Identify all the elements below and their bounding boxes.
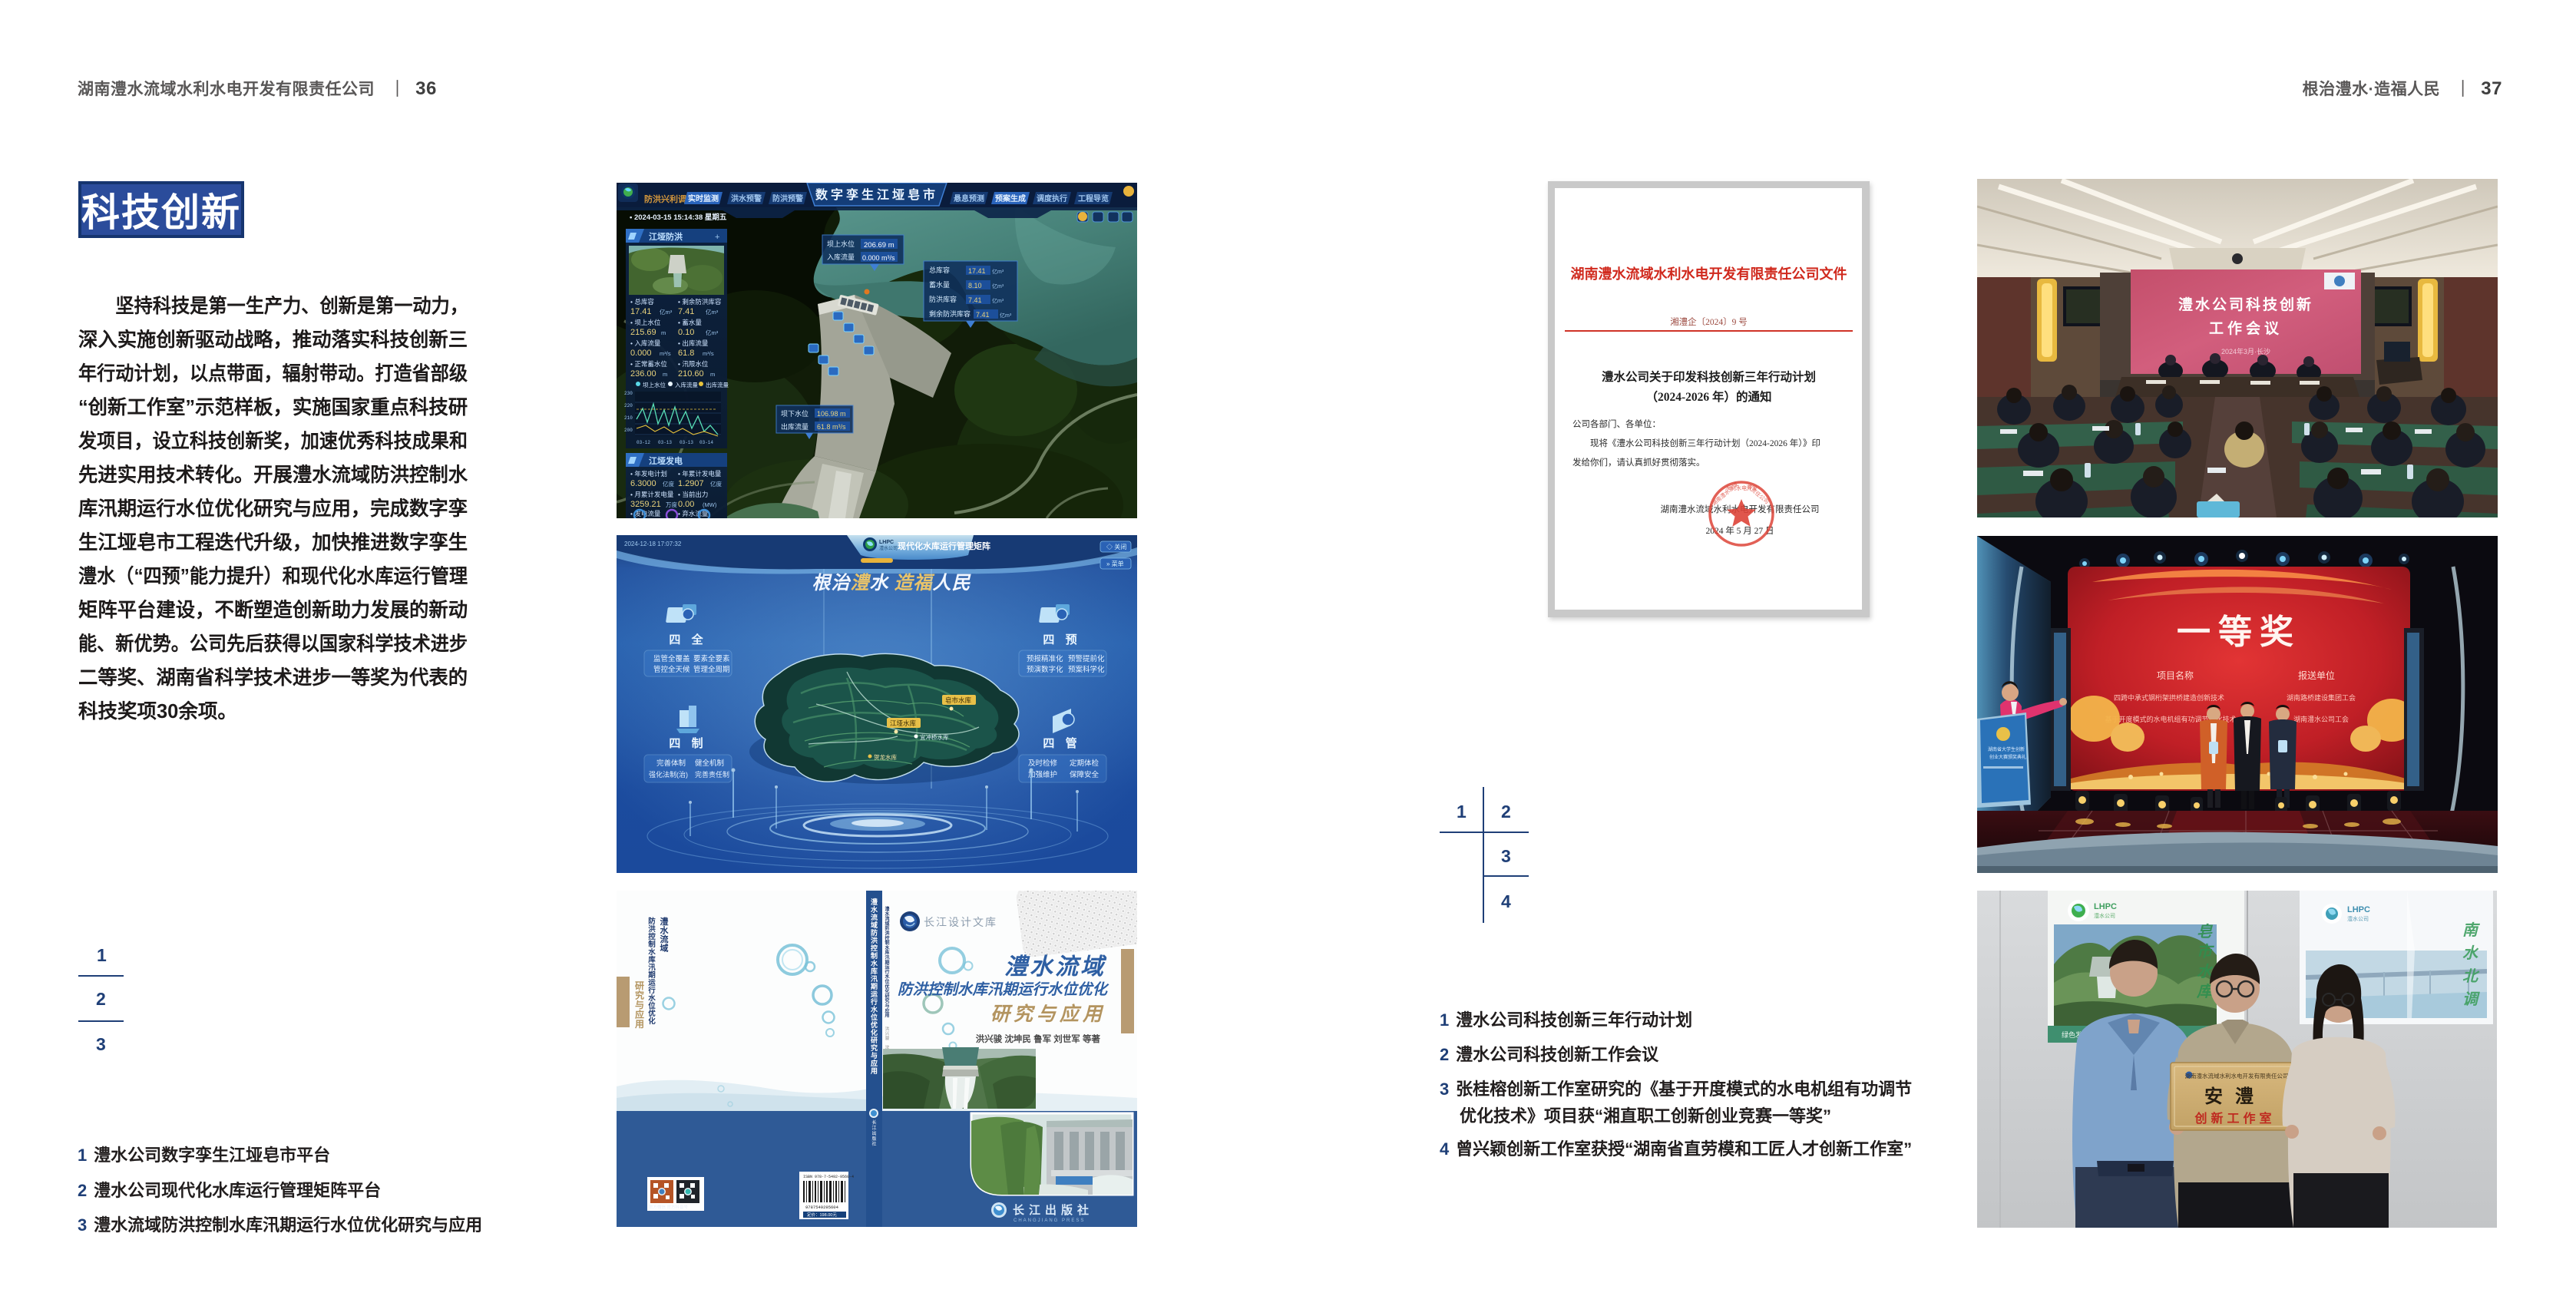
svg-text:完善责任制: 完善责任制 <box>695 770 729 779</box>
svg-text:四 制: 四 制 <box>669 736 706 750</box>
svg-text:官方微信 官方抖音号: 官方微信 官方抖音号 <box>649 1204 689 1210</box>
svg-text:61.8 m³/s: 61.8 m³/s <box>817 423 846 431</box>
svg-text:防洪控制水库汛期运行水位优化: 防洪控制水库汛期运行水位优化 <box>898 981 1110 998</box>
svg-text:蓄水量: 蓄水量 <box>929 280 950 289</box>
svg-text:湖南澧水流域: 湖南澧水流域 <box>1710 481 1739 507</box>
svg-text:亿m³: 亿m³ <box>706 308 719 316</box>
svg-text:澧水公司: 澧水公司 <box>2347 915 2369 922</box>
svg-text:澧水流域防洪控制水库汛期运行水位优化研究与应用: 澧水流域防洪控制水库汛期运行水位优化研究与应用 <box>884 906 890 1019</box>
svg-text:230: 230 <box>624 391 633 396</box>
svg-text:m³/s: m³/s <box>703 350 714 357</box>
svg-text:总库容: 总库容 <box>929 266 950 274</box>
svg-text:亿m³: 亿m³ <box>992 297 1004 304</box>
svg-text:完善体制: 完善体制 <box>656 759 686 768</box>
svg-text:m: m <box>663 371 667 378</box>
svg-text:坝上水位: 坝上水位 <box>643 381 666 388</box>
svg-text:管控全天候: 管控全天候 <box>653 665 690 674</box>
svg-text:江垭水库: 江垭水库 <box>890 719 917 727</box>
svg-text:创新工作室: 创新工作室 <box>2194 1111 2275 1126</box>
svg-text:7.41: 7.41 <box>976 311 990 319</box>
svg-text:出库流量: 出库流量 <box>781 422 809 431</box>
svg-text:3259.21: 3259.21 <box>630 500 661 509</box>
svg-text:出库流量: 出库流量 <box>706 381 729 388</box>
svg-text:0.000 m³/s: 0.000 m³/s <box>862 254 895 262</box>
svg-text:预报精准化: 预报精准化 <box>1027 654 1063 663</box>
svg-text:安澧: 安澧 <box>2204 1086 2266 1107</box>
svg-text:万度: 万度 <box>666 501 677 508</box>
svg-text:预警提前化: 预警提前化 <box>1068 654 1105 663</box>
svg-text:湖南澧水公司工会: 湖南澧水公司工会 <box>2293 715 2349 723</box>
svg-text:预演数字化: 预演数字化 <box>1027 665 1063 674</box>
svg-text:• 2024-03-15 15:14:38 星期五: • 2024-03-15 15:14:38 星期五 <box>630 213 727 222</box>
svg-text:03-14: 03-14 <box>699 440 713 445</box>
svg-text:03-13: 03-13 <box>680 440 693 445</box>
svg-text:m³/s: m³/s <box>660 350 671 357</box>
svg-text:220: 220 <box>624 403 633 408</box>
svg-text:ISBN 978-7-5492-9560-4: ISBN 978-7-5492-9560-4 <box>803 1175 854 1179</box>
svg-text:澧水公司科技创新: 澧水公司科技创新 <box>2178 296 2313 313</box>
svg-text:数字孪生江垭皂市: 数字孪生江垭皂市 <box>815 187 938 202</box>
svg-text:03-12: 03-12 <box>637 440 650 445</box>
svg-text:实时监测: 实时监测 <box>688 193 719 203</box>
svg-text:长江出版社: 长江出版社 <box>871 1119 876 1147</box>
svg-text:• 蓄水量: • 蓄水量 <box>678 319 702 326</box>
svg-text:防洪预警: 防洪预警 <box>772 193 803 203</box>
svg-text:8.10: 8.10 <box>968 282 982 289</box>
svg-text:皂市水库: 皂市水库 <box>945 696 972 704</box>
svg-text:• 坝上水位: • 坝上水位 <box>630 319 661 326</box>
svg-text:入库流量: 入库流量 <box>675 381 698 388</box>
svg-text:湖南路桥建设集团工会: 湖南路桥建设集团工会 <box>2287 693 2356 702</box>
svg-text:宜冲桥水库: 宜冲桥水库 <box>920 733 949 741</box>
svg-text:• 总库容: • 总库容 <box>630 298 654 306</box>
svg-text:236.00: 236.00 <box>630 369 656 379</box>
svg-text:• 月累计发电量: • 月累计发电量 <box>630 491 674 498</box>
svg-text:(MW): (MW) <box>703 501 717 508</box>
svg-text:悬息预测: 悬息预测 <box>953 193 984 203</box>
svg-text:• 入库流量: • 入库流量 <box>630 339 661 347</box>
svg-text:LHPC: LHPC <box>879 540 894 545</box>
svg-text:定价：198.00元: 定价：198.00元 <box>807 1212 837 1218</box>
svg-text:澧水流域: 澧水流域 <box>660 916 670 954</box>
svg-text:• 年累计发电量: • 年累计发电量 <box>678 470 722 478</box>
svg-text:报送单位: 报送单位 <box>2298 670 2335 681</box>
svg-text:工程导览: 工程导览 <box>1078 193 1109 203</box>
svg-text:保障安全: 保障安全 <box>1070 770 1100 779</box>
svg-text:入库流量: 入库流量 <box>827 253 855 261</box>
svg-text:坝上水位: 坝上水位 <box>827 240 855 248</box>
svg-text:四 管: 四 管 <box>1043 736 1080 750</box>
svg-text:7.41: 7.41 <box>968 296 982 304</box>
svg-text:防洪控制水库汛期运行水位优化: 防洪控制水库汛期运行水位优化 <box>647 917 656 1026</box>
svg-text:m: m <box>710 371 715 378</box>
svg-text:及时检修: 及时检修 <box>1028 759 1058 768</box>
svg-text:要素全要素: 要素全要素 <box>693 654 730 663</box>
svg-text:定期体检: 定期体检 <box>1070 759 1100 768</box>
svg-text:210: 210 <box>624 415 633 421</box>
svg-text:四 全: 四 全 <box>669 633 706 646</box>
svg-text:工作会议: 工作会议 <box>2209 319 2283 337</box>
svg-text:预案科学化: 预案科学化 <box>1068 665 1105 674</box>
svg-text:管理全周期: 管理全周期 <box>693 665 730 674</box>
svg-text:106.98 m: 106.98 m <box>817 410 846 418</box>
svg-text:• 汛限水位: • 汛限水位 <box>678 360 709 368</box>
svg-text:17.41: 17.41 <box>968 267 986 275</box>
svg-text:215.69: 215.69 <box>630 328 656 337</box>
svg-text:LHPC: LHPC <box>2347 905 2370 914</box>
svg-text:0.00: 0.00 <box>678 500 694 509</box>
svg-text:根治澧水 造福人民: 根治澧水 造福人民 <box>812 573 972 593</box>
svg-text:创业大赛颁奖典礼: 创业大赛颁奖典礼 <box>1989 754 2026 760</box>
svg-text:澧水流域防洪控制水库汛期运行水位优化研究与应用: 澧水流域防洪控制水库汛期运行水位优化研究与应用 <box>870 898 878 1075</box>
svg-text:一等奖: 一等奖 <box>2177 613 2301 651</box>
svg-text:61.8: 61.8 <box>678 349 694 358</box>
svg-text:亿度: 亿度 <box>663 480 674 488</box>
svg-text:澧水公司: 澧水公司 <box>879 545 898 551</box>
svg-text:江垭防洪: 江垭防洪 <box>649 231 683 242</box>
svg-text:206.69 m: 206.69 m <box>864 241 894 250</box>
svg-text:• 出库流量: • 出库流量 <box>678 339 709 347</box>
svg-text:• 年发电计划: • 年发电计划 <box>630 470 667 478</box>
svg-text:6.3000: 6.3000 <box>630 479 656 488</box>
svg-text:强化法制(治): 强化法制(治) <box>649 770 688 779</box>
svg-text:1.2907: 1.2907 <box>678 479 704 488</box>
svg-text:长江设计文库: 长江设计文库 <box>924 916 997 928</box>
svg-text:江垭发电: 江垭发电 <box>649 455 683 466</box>
svg-text:• 正常蓄水位: • 正常蓄水位 <box>630 360 667 368</box>
svg-text:9787549295604: 9787549295604 <box>805 1205 839 1210</box>
svg-text:洪兴骏 沈坤民 鲁军 刘世军 等著: 洪兴骏 沈坤民 鲁军 刘世军 等著 <box>976 1033 1101 1044</box>
svg-text:0.000: 0.000 <box>630 349 652 358</box>
svg-text:CHANGJIANG PRESS: CHANGJIANG PRESS <box>1014 1218 1085 1223</box>
svg-text:2024-12-18 17:07:32: 2024-12-18 17:07:32 <box>624 541 682 547</box>
svg-text:亿度: 亿度 <box>710 480 722 488</box>
svg-text:调度执行: 调度执行 <box>1037 193 1067 203</box>
svg-text:澧水公司: 澧水公司 <box>2094 912 2115 919</box>
svg-text:• 剩余防洪库容: • 剩余防洪库容 <box>678 298 722 306</box>
svg-text:亿m³: 亿m³ <box>660 308 673 316</box>
svg-text:水利水电开发: 水利水电开发 <box>1725 484 1758 491</box>
svg-text:• 弃水流量: • 弃水流量 <box>678 510 709 517</box>
svg-text:LHPC: LHPC <box>2094 902 2117 911</box>
svg-text:贺龙水库: 贺龙水库 <box>874 753 897 761</box>
svg-text:17.41: 17.41 <box>630 307 652 316</box>
svg-text:+: + <box>715 233 719 242</box>
svg-text:• 当前出力: • 当前出力 <box>678 491 708 498</box>
svg-text:洪水预警: 洪水预警 <box>731 193 762 203</box>
svg-text:监管全覆盖: 监管全覆盖 <box>653 654 690 663</box>
svg-text:亿m³: 亿m³ <box>1000 312 1012 319</box>
svg-text:研究与应用: 研究与应用 <box>634 980 644 1030</box>
svg-text:四 预: 四 预 <box>1043 633 1080 646</box>
svg-text:长江出版社: 长江出版社 <box>1013 1203 1093 1217</box>
svg-text:◇ 关闭: ◇ 关闭 <box>1106 543 1126 551</box>
svg-text:210.60: 210.60 <box>678 369 704 379</box>
svg-text:0.10: 0.10 <box>678 328 694 337</box>
svg-text:m: m <box>661 329 666 336</box>
svg-text:研究与应用: 研究与应用 <box>990 1003 1106 1025</box>
svg-text:亿m³: 亿m³ <box>992 268 1004 275</box>
svg-text:防洪库容: 防洪库容 <box>929 295 957 303</box>
svg-text:» 菜单: » 菜单 <box>1106 560 1124 567</box>
svg-text:现代化水库运行管理矩阵: 现代化水库运行管理矩阵 <box>898 541 990 551</box>
svg-text:湖南澧水流域水利水电开发有限责任公司: 湖南澧水流域水利水电开发有限责任公司 <box>2185 1072 2289 1080</box>
svg-text:预案生成: 预案生成 <box>995 193 1026 203</box>
svg-text:2024年3月·长沙: 2024年3月·长沙 <box>2221 347 2270 355</box>
svg-text:坝下水位: 坝下水位 <box>781 409 809 418</box>
svg-text:健全机制: 健全机制 <box>695 759 724 768</box>
svg-text:7.41: 7.41 <box>678 307 694 316</box>
svg-text:03-13: 03-13 <box>658 440 672 445</box>
svg-text:亿m³: 亿m³ <box>992 283 1004 289</box>
svg-text:项目名称: 项目名称 <box>2157 670 2194 681</box>
svg-text:200: 200 <box>624 428 633 433</box>
svg-text:四跨中承式钢桁架拱桥建造创新技术: 四跨中承式钢桁架拱桥建造创新技术 <box>2114 693 2224 702</box>
svg-text:亿m³: 亿m³ <box>706 329 719 336</box>
svg-text:澧水流域: 澧水流域 <box>1004 954 1107 980</box>
svg-text:剩余防洪库容: 剩余防洪库容 <box>929 309 971 318</box>
svg-text:湖南省大学生创新: 湖南省大学生创新 <box>1988 746 2025 752</box>
